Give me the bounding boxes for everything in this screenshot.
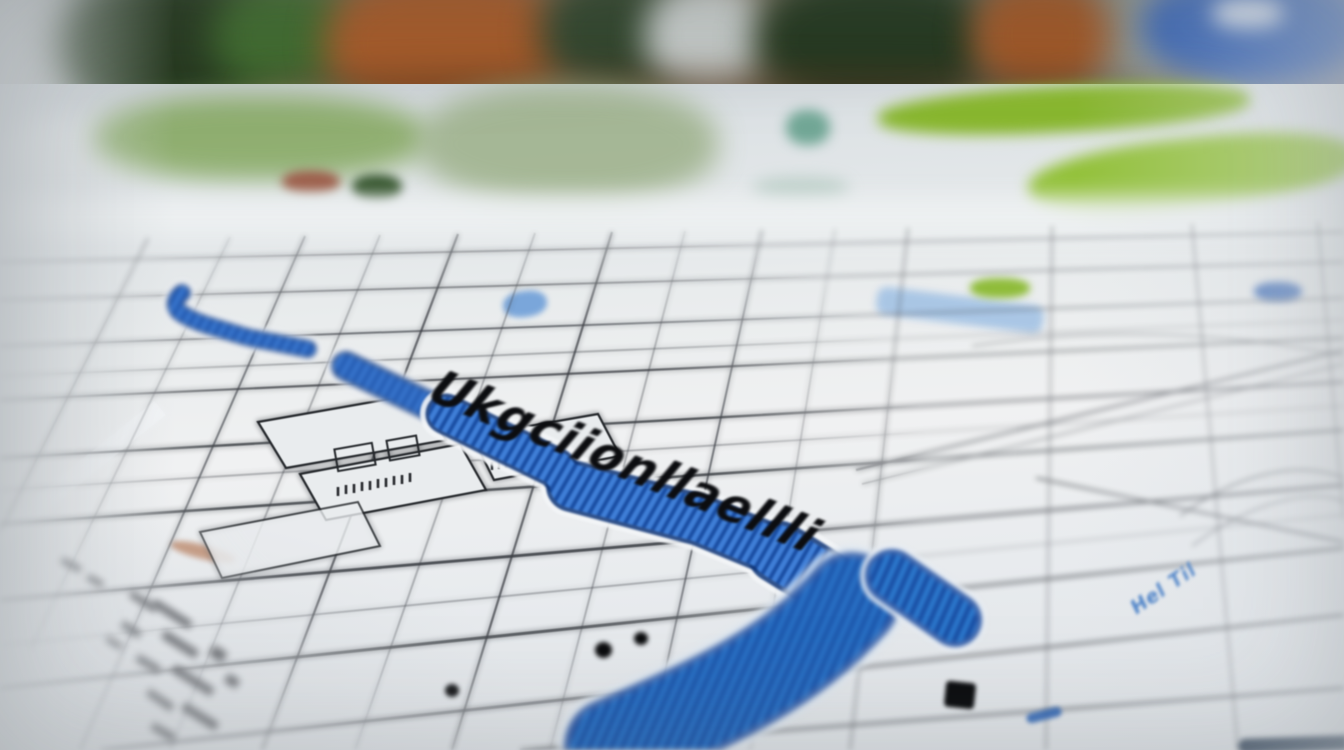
map-photo: Ukgciionllaellli Hel Til	[0, 0, 1344, 750]
vignette	[0, 0, 1344, 750]
